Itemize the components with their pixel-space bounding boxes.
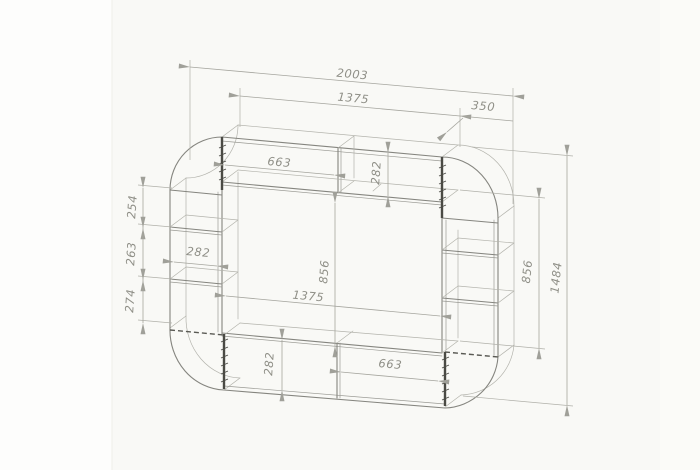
furniture-technical-drawing: 2003 1375 350 663 282 254 263 274 282 85… <box>0 0 700 470</box>
dim-label-niche-height: 856 <box>316 259 332 284</box>
dim-label-left-shelf-gap-2: 263 <box>123 241 139 266</box>
dim-label-left-shelf-gap-1: 254 <box>124 194 140 219</box>
dim-label-top-shelf-height: 282 <box>368 160 384 185</box>
dim-label-bottom-shelf-height: 282 <box>261 351 277 376</box>
dim-label-overall-width: 2003 <box>336 66 369 83</box>
dim-label-side-module-width: 350 <box>471 98 496 114</box>
dim-label-top-shelf-width: 663 <box>267 154 292 170</box>
dim-label-top-inner-width: 1375 <box>337 90 370 107</box>
drawing-canvas: 2003 1375 350 663 282 254 263 274 282 85… <box>0 0 700 470</box>
dim-label-left-column-width: 282 <box>186 244 211 260</box>
dim-label-right-side-height: 856 <box>519 259 535 284</box>
dim-label-left-shelf-gap-3: 274 <box>122 288 138 313</box>
dim-label-bottom-shelf-width: 663 <box>378 356 403 372</box>
dim-label-niche-width: 1375 <box>292 288 325 305</box>
